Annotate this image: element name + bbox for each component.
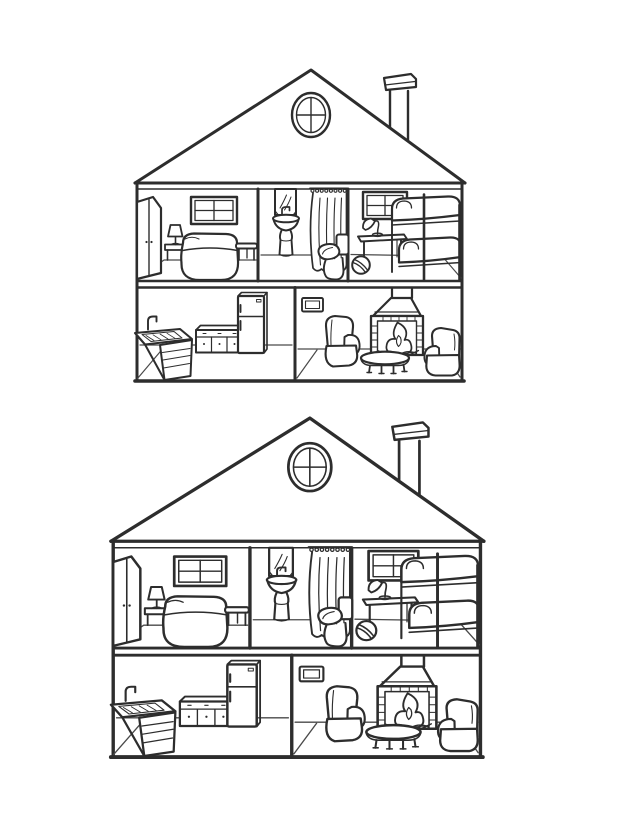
scene-canvas <box>0 0 638 826</box>
figure-house-bottom <box>111 418 484 757</box>
figure-house-top <box>135 70 465 381</box>
coloring-page <box>0 0 638 826</box>
